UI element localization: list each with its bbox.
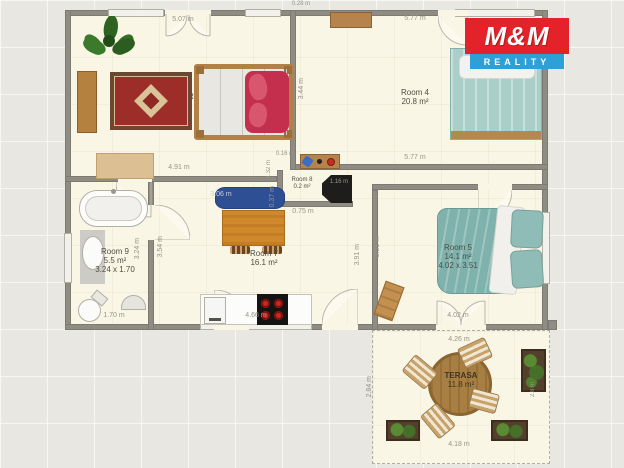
dim-sofa-depth: 0.37 m — [269, 186, 276, 207]
red-dot-icon — [327, 158, 335, 166]
pillow — [510, 249, 545, 289]
bed-room2 — [194, 64, 294, 140]
dim-fireplace: 1.16 m — [324, 179, 354, 185]
shelf-room4 — [330, 12, 372, 28]
wall-stub-right — [548, 320, 557, 330]
room7-label: Room 7 16.1 m² — [233, 249, 295, 267]
planter — [386, 420, 420, 441]
plant-icon — [80, 16, 138, 66]
dim-room7-left: 3.54 m — [157, 236, 164, 257]
room8-label: Room 8 0.2 m² — [283, 177, 321, 190]
dim-terrace-top: 4.26 m — [437, 336, 481, 343]
terrace-label: TERASA 11.8 m² — [428, 371, 494, 389]
logo-subtitle-box: REALITY — [470, 54, 564, 69]
room5-label: Room 5 14.1 m² 4.02 x 3.51 — [426, 243, 490, 271]
dim-room9-bottom: 1.70 m — [96, 312, 132, 319]
logo-title: M&M — [484, 21, 549, 52]
dim-room4-bottom: 5.77 m — [392, 154, 438, 161]
door-arc-room4 — [438, 16, 468, 46]
pillow — [510, 209, 544, 249]
room4-label: Room 4 20.8 m² — [384, 88, 446, 106]
kitchen-appliance — [204, 297, 226, 324]
dim-hall-left: 1.32 m — [266, 160, 272, 178]
door-arc-room7-bottom-right — [322, 289, 358, 325]
dim-terrace-left: 2.84 m — [366, 376, 373, 397]
window-room2-top-2 — [245, 9, 281, 17]
dim-room2-door: 5.07 m — [160, 16, 206, 23]
faucet-icon — [111, 189, 116, 194]
dim-room9-right: 3.24 m — [134, 238, 141, 259]
dim-room5-left: 3.51 m — [374, 236, 381, 257]
black-dot-icon — [317, 159, 322, 164]
dim-terrace-bottom: 4.18 m — [437, 441, 481, 448]
dining-table — [222, 210, 285, 246]
wall-room5-top — [372, 184, 548, 190]
dim-wall-top: 0.28 m — [284, 1, 318, 7]
dim-hall-bottom: 0.75 m — [288, 208, 318, 215]
dim-sofa-width: 3.06 m — [206, 191, 236, 198]
door-arc-room7-left — [155, 205, 190, 240]
dim-room4-left: 3.44 m — [298, 78, 305, 99]
window-bath-left — [64, 233, 72, 283]
logo-title-box: M&M — [465, 18, 569, 54]
sideboard — [77, 71, 97, 133]
planter — [491, 420, 528, 441]
rug-medallion — [134, 84, 168, 118]
dim-room7-bottom: 4.66 m — [238, 312, 274, 319]
table-room2 — [96, 153, 154, 179]
dim-room2-bottom: 4.91 m — [156, 164, 202, 171]
dim-room7-right: 3.91 m — [354, 244, 361, 265]
bathtub — [79, 190, 148, 227]
logo-subtitle: REALITY — [484, 57, 551, 67]
dim-terrace-right: 2.8 m — [530, 382, 536, 397]
rug-field — [114, 76, 188, 126]
floor-plan: Room 2 m² Room 4 20.8 m² Room 5 14.1 m² … — [0, 0, 624, 468]
red-duvet — [245, 71, 289, 133]
dim-hall-gap: 0.16 m — [272, 151, 298, 157]
bed-footboard — [451, 131, 541, 139]
dim-room4-top: 5.77 m — [392, 15, 438, 22]
rug — [110, 72, 192, 130]
dim-room5-bottom: 4.02 m — [440, 312, 476, 319]
cooktop — [257, 294, 288, 325]
realty-logo: M&M REALITY — [465, 18, 569, 69]
